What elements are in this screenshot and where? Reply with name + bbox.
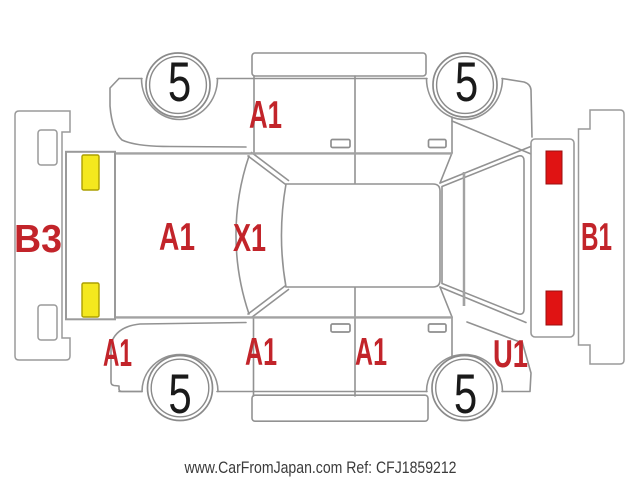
svg-text:B1: B1	[581, 216, 612, 259]
svg-text:5: 5	[168, 51, 191, 113]
svg-text:5: 5	[168, 363, 191, 425]
svg-text:A1: A1	[245, 331, 277, 374]
svg-text:5: 5	[454, 363, 477, 425]
svg-text:A1: A1	[159, 216, 195, 259]
svg-text:A1: A1	[103, 332, 132, 375]
svg-text:X1: X1	[233, 217, 266, 260]
svg-text:5: 5	[455, 51, 478, 113]
svg-text:B3: B3	[14, 218, 62, 261]
svg-text:www.CarFromJapan.com Ref: CFJ1: www.CarFromJapan.com Ref: CFJ1859212	[184, 458, 457, 477]
svg-text:U1: U1	[493, 333, 528, 376]
svg-text:A1: A1	[355, 331, 387, 374]
svg-text:A1: A1	[249, 94, 282, 137]
